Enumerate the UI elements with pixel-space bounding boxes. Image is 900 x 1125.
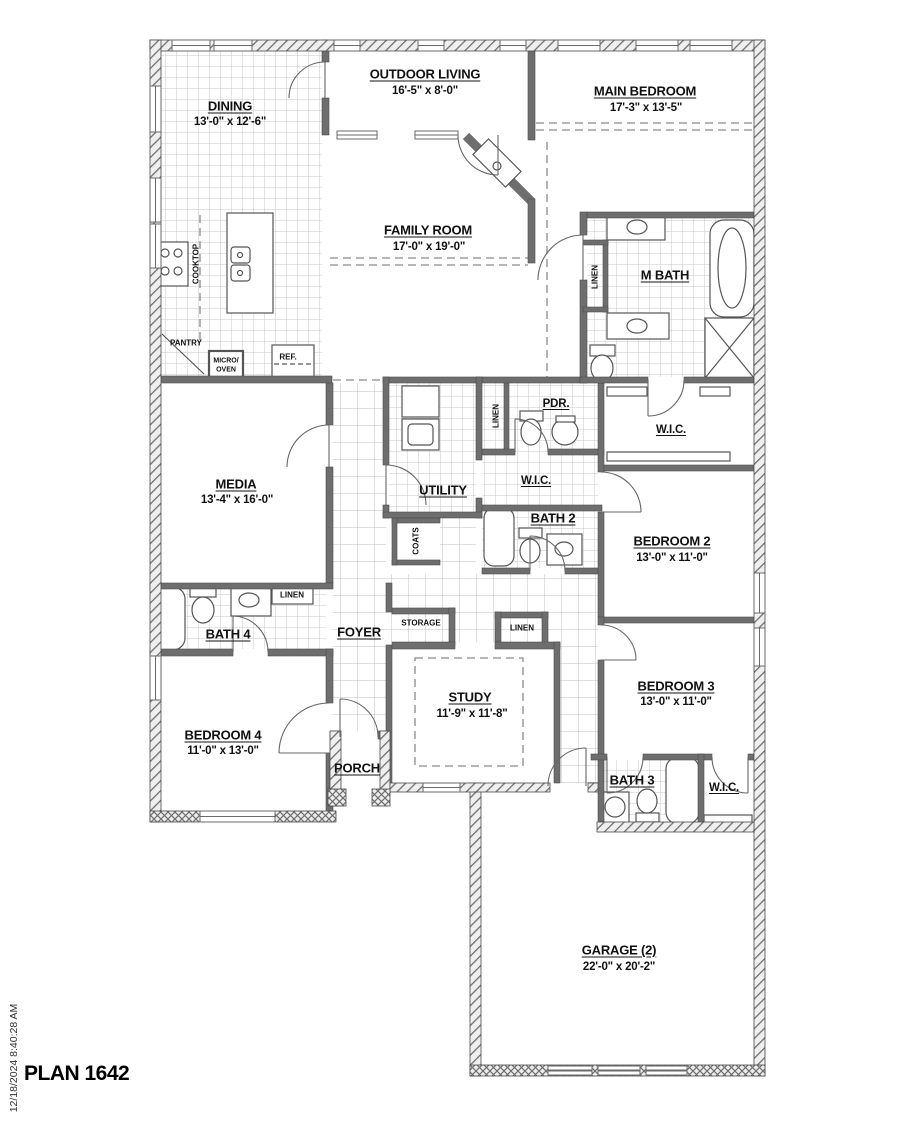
- cooktop-label: COOKTOP: [192, 244, 201, 284]
- pdr-toilet-icon: [520, 411, 543, 445]
- bedroom2-label: BEDROOM 2: [634, 534, 711, 549]
- family-room-label: FAMILY ROOM: [384, 223, 472, 238]
- bath3-toilet-icon: [636, 789, 659, 822]
- door-icon: [287, 425, 329, 467]
- bedroom2-dims: 13'-0" x 11'-0": [636, 552, 708, 564]
- floor-plan-page: DINING 13'-0" x 12'-6" OUTDOOR LIVING 16…: [0, 0, 900, 1125]
- outdoor-living-dims: 16'-5" x 8'-0": [392, 85, 458, 97]
- micro-oven-label-1: MICRO/: [213, 357, 238, 365]
- pdr-label: PDR.: [543, 398, 570, 410]
- utility-label: UTILITY: [419, 483, 467, 498]
- coats-label: COATS: [412, 527, 421, 554]
- door-icon: [279, 703, 329, 753]
- shower-icon: [705, 318, 754, 378]
- bath2-label: BATH 2: [531, 511, 576, 526]
- media-label: MEDIA: [216, 477, 257, 492]
- dining-dims: 13'-0" x 12'-6": [194, 116, 266, 128]
- micro-oven-label-2: OVEN: [216, 366, 236, 374]
- study-label: STUDY: [448, 690, 491, 705]
- m-bath-label: M BATH: [641, 268, 689, 283]
- mbath-vanity-1: [607, 215, 665, 240]
- bath3-vanity: [601, 792, 629, 823]
- wic-bed3-label: W.I.C.: [709, 782, 739, 794]
- linen-pdr-label: LINEN: [492, 404, 501, 428]
- bedroom3-dims: 13'-0" x 11'-0": [640, 696, 712, 708]
- mbath-vanity-2: [607, 313, 669, 339]
- linen-mbath-label: LINEN: [591, 265, 600, 289]
- door-icon: [538, 235, 583, 280]
- floor-plan-drawing: [0, 0, 900, 1125]
- ref-label: REF.: [279, 353, 296, 362]
- storage-label: STORAGE: [401, 619, 440, 628]
- door-icon: [601, 625, 636, 660]
- bath4-vanity: [231, 587, 271, 616]
- bedroom4-dims: 11'-0" x 13'-0": [187, 745, 259, 757]
- dining-label: DINING: [208, 99, 252, 114]
- porch-label: PORCH: [334, 761, 380, 776]
- study-dims: 11'-9" x 11'-8": [437, 708, 508, 720]
- plan-title: PLAN 1642: [24, 1062, 129, 1086]
- mbath-toilet-icon: [590, 345, 615, 381]
- linen-study-label: LINEN: [510, 624, 534, 633]
- family-room-dims: 17'-0" x 19'-0": [393, 241, 465, 253]
- pdr-sink-icon: [552, 416, 578, 445]
- bath2-tub-icon: [484, 508, 514, 566]
- bedroom3-label: BEDROOM 3: [638, 679, 715, 694]
- micro-oven-cabinet: [209, 351, 243, 379]
- door-icon: [601, 472, 641, 512]
- main-bedroom-dims: 17'-3" x 13'-5": [610, 102, 682, 114]
- timestamp: 12/18/2024 8:40:28 AM: [8, 1004, 20, 1113]
- pantry-label: PANTRY: [170, 339, 202, 348]
- bath4-label: BATH 4: [206, 627, 251, 642]
- garage-door-icon: [548, 1065, 687, 1076]
- linen-bath4-label: LINEN: [280, 591, 304, 600]
- garage-dims: 22'-0" x 20'-2": [583, 961, 655, 973]
- refrigerator-icon: [272, 345, 314, 379]
- kitchen-island: [227, 213, 273, 313]
- media-dims: 13'-4" x 16'-0": [201, 494, 273, 506]
- bath3-label: BATH 3: [610, 773, 655, 788]
- wic-main-label: W.I.C.: [656, 424, 686, 436]
- bath3-tub-icon: [666, 757, 699, 824]
- bath4-toilet-icon: [190, 587, 216, 623]
- wic-hall-label: W.I.C.: [521, 475, 551, 487]
- garden-tub-icon: [710, 220, 754, 317]
- outdoor-living-label: OUTDOOR LIVING: [370, 67, 481, 82]
- door-icon: [648, 380, 684, 416]
- garage-label: GARAGE (2): [582, 943, 657, 958]
- foyer-label: FOYER: [337, 625, 381, 640]
- bath2-vanity: [547, 534, 582, 565]
- main-bedroom-label: MAIN BEDROOM: [594, 84, 696, 99]
- bedroom4-label: BEDROOM 4: [185, 728, 262, 743]
